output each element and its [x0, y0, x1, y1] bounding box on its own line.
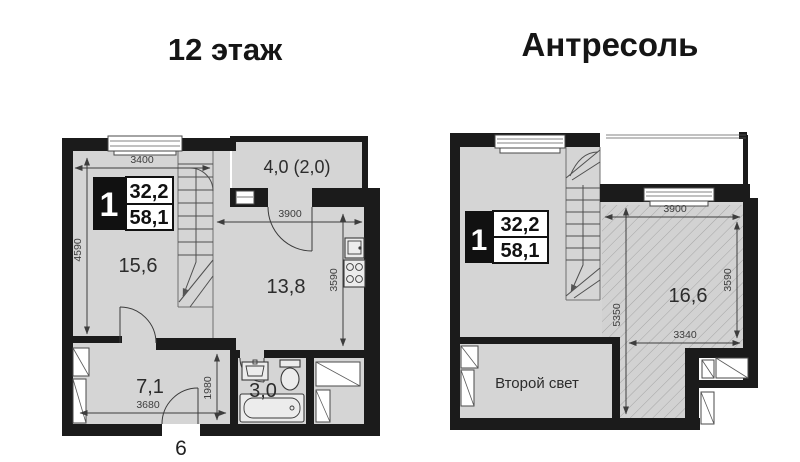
void-glazing	[606, 135, 746, 138]
dim-top-width: 3900	[663, 203, 687, 215]
dim-top-width: 3400	[130, 154, 154, 166]
label-hall-area: 7,1	[136, 376, 164, 398]
mezzanine-title: Антресоль	[440, 26, 780, 64]
balcony-door-opening	[268, 188, 312, 207]
stove-icon	[344, 260, 365, 287]
floor12-title: 12 этаж	[50, 32, 400, 68]
dim-kitchen-height: 3590	[328, 268, 340, 292]
entrance-opening	[162, 424, 200, 436]
label-bath-area: 3,0	[249, 380, 277, 402]
badge-area-living: 32,2	[130, 181, 169, 203]
label-void: Второй свет	[495, 375, 579, 392]
badge-area-total: 58,1	[130, 207, 169, 229]
floorplan-page: 12 этаж Антресоль	[0, 0, 800, 462]
notch-closets	[701, 358, 748, 424]
dim-hall-width: 3680	[136, 399, 160, 411]
dim-kitchen-width: 3900	[278, 208, 302, 220]
badge-rooms: 1	[100, 186, 119, 224]
badge-area-living: 32,2	[501, 214, 540, 236]
label-living-area: 15,6	[119, 255, 158, 277]
window-top	[108, 136, 182, 155]
dim-bottom-width: 3340	[673, 329, 697, 341]
apartment-badge: 1 32,2 58,1	[93, 177, 173, 230]
dim-left-height: 4590	[72, 238, 84, 262]
bathroom-sink-icon	[242, 360, 268, 380]
badge-area-total: 58,1	[501, 240, 540, 262]
label-kitchen-area: 13,8	[267, 276, 306, 298]
apartment-badge: 1 32,2 58,1	[465, 211, 548, 263]
label-mezzanine-area: 16,6	[669, 285, 708, 307]
window-top	[495, 135, 565, 153]
kitchen-sink-icon	[345, 238, 364, 258]
bath-door-opening	[240, 350, 264, 358]
toilet-icon	[280, 360, 300, 390]
label-apartment-number: 6	[175, 437, 187, 460]
badge-rooms: 1	[471, 224, 488, 257]
dim-right-height: 3590	[722, 268, 734, 292]
floor-plan-12: 3400 4590 3900 3590 1980 3680 15,6 13,8 …	[50, 110, 400, 462]
dim-left-height: 5350	[611, 303, 623, 327]
floor-plan-mezzanine: 3900 3590 5350 3340 16,6 Второй свет 1 3…	[440, 110, 780, 450]
window-balcony	[236, 191, 254, 204]
label-balcony-area: 4,0 (2,0)	[263, 157, 330, 177]
dim-hall-height: 1980	[202, 376, 214, 400]
living-door-opening	[122, 336, 156, 343]
